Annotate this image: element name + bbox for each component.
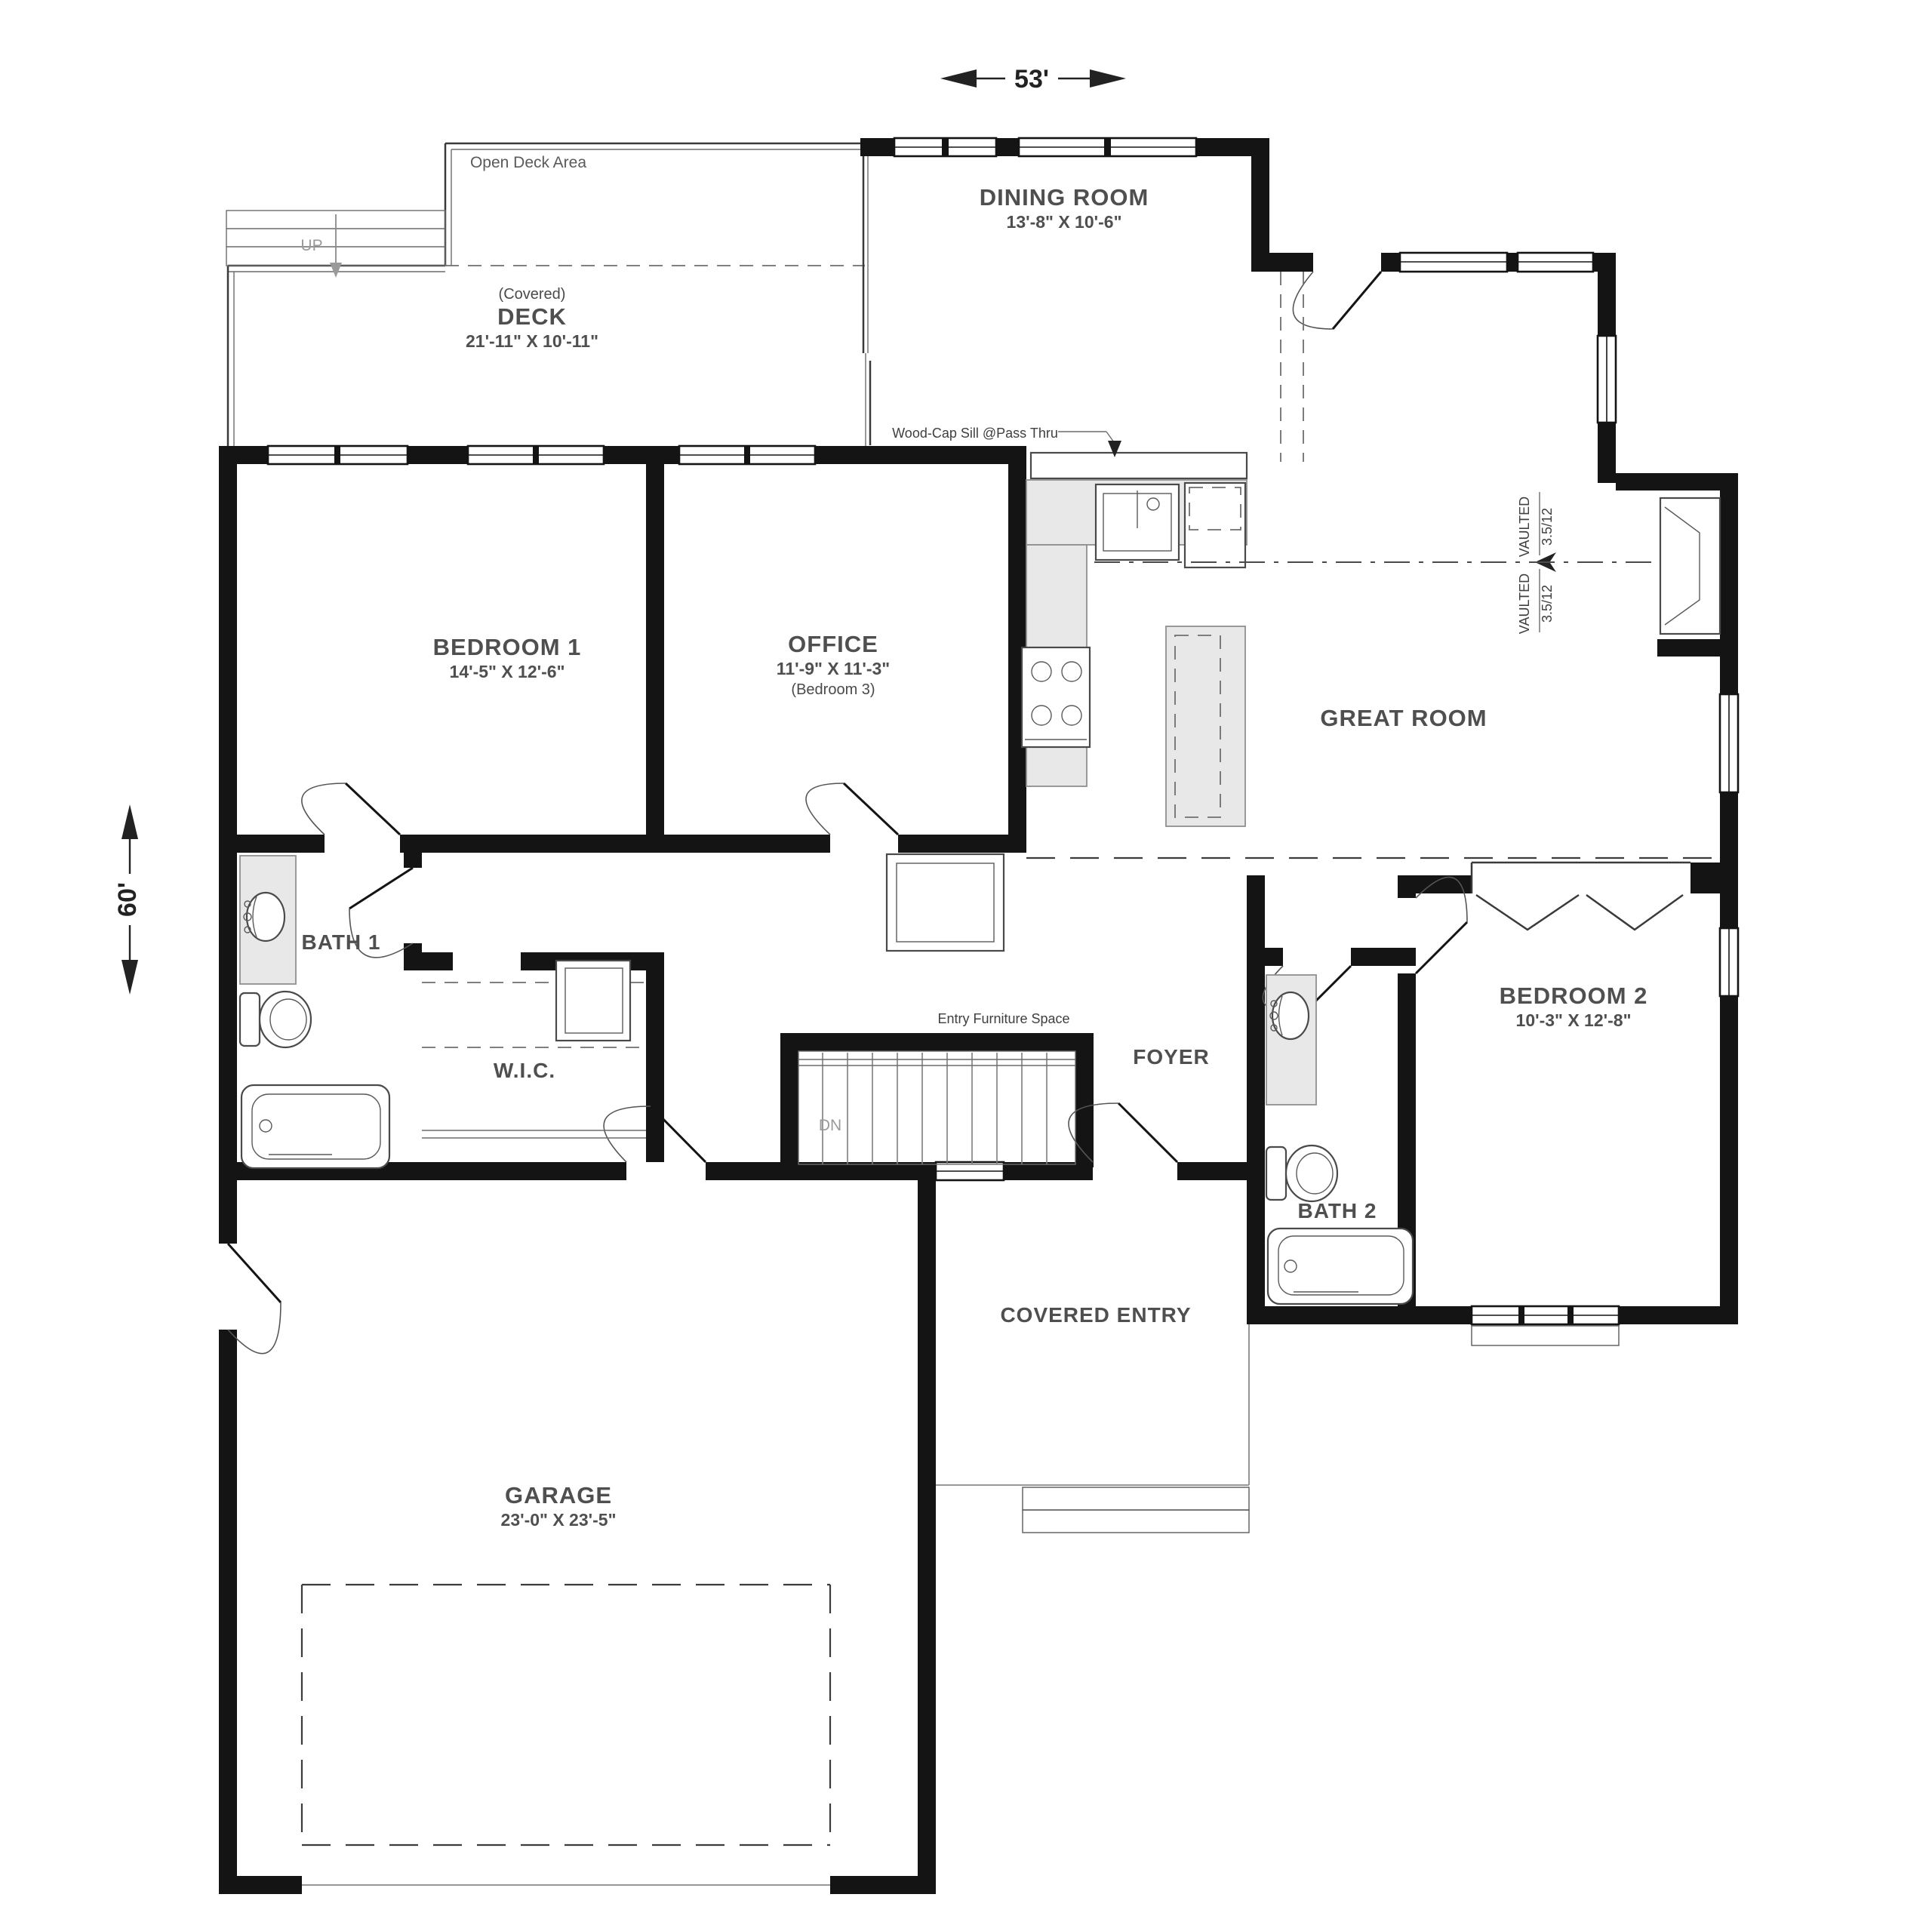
dim-height-label: 60' [113, 882, 142, 917]
garage-label: GARAGE [505, 1482, 612, 1508]
vaulted-label: VAULTED [1517, 497, 1532, 557]
deck-covered-label: (Covered) [499, 286, 566, 303]
vaulted-pitch: 3.5/12 [1540, 508, 1555, 546]
window [1720, 928, 1738, 996]
windows [268, 138, 1738, 1324]
kitchen-island [1166, 626, 1245, 826]
wood-cap-label: Wood-Cap Sill @Pass Thru [892, 426, 1058, 441]
door-great-room-deck [1293, 272, 1381, 329]
covered-entry-label: COVERED ENTRY [1000, 1303, 1191, 1327]
range-stove [1022, 647, 1090, 747]
office-dims: 11'-9" X 11'-3" [777, 659, 890, 678]
bifold-door-icon [1586, 895, 1683, 930]
dim-arrow-left-icon [940, 69, 977, 88]
bath2-fixtures [1266, 975, 1413, 1304]
window [1598, 336, 1616, 423]
office-alt-label: (Bedroom 3) [791, 681, 875, 698]
garage-door [302, 1585, 830, 1885]
floor-plan-page: 53' 60' Open Deck Area UP (Covered) DECK… [0, 0, 1932, 1925]
bath2-label: BATH 2 [1297, 1199, 1377, 1222]
wic-dresser [556, 961, 630, 1041]
bath1-label: BATH 1 [301, 930, 380, 954]
deck-label: DECK [497, 303, 567, 330]
foyer-label: FOYER [1133, 1045, 1209, 1069]
dim-arrow-right-icon [1090, 69, 1126, 88]
dining-dims: 13'-8" X 10'-6" [1007, 212, 1122, 232]
window [268, 446, 408, 464]
bedroom1-label: BEDROOM 1 [433, 634, 582, 660]
office-label: OFFICE [788, 631, 878, 657]
garage-dims: 23'-0" X 23'-5" [501, 1510, 617, 1530]
vaulted-label: VAULTED [1517, 574, 1532, 634]
entry-cabinet [887, 854, 1004, 951]
entry-furniture-label: Entry Furniture Space [937, 1011, 1069, 1026]
door-bedroom1 [302, 783, 400, 835]
up-arrow-icon [330, 263, 342, 278]
dining-label: DINING ROOM [980, 184, 1149, 211]
bedroom2-label: BEDROOM 2 [1500, 982, 1648, 1009]
bedroom1-dims: 14'-5" X 12'-6" [450, 662, 565, 681]
dimension-height: 60' [113, 804, 142, 995]
deck-dims: 21'-11" X 10'-11" [466, 331, 598, 351]
window [1518, 253, 1593, 272]
wic-label: W.I.C. [494, 1059, 555, 1082]
window [1720, 694, 1738, 792]
up-label: UP [300, 237, 322, 254]
bath2-toilet [1266, 1145, 1337, 1201]
window [679, 446, 815, 464]
window [468, 446, 604, 464]
refrigerator [1185, 483, 1245, 567]
window [1019, 138, 1196, 156]
window [1472, 1306, 1619, 1324]
vaulted-pitch: 3.5/12 [1540, 585, 1555, 623]
bath1-fixtures [240, 856, 389, 1168]
porch-steps [936, 1324, 1619, 1533]
bath1-toilet [240, 992, 311, 1047]
floor-plan-drawing: 53' 60' Open Deck Area UP (Covered) DECK… [0, 0, 1932, 1925]
dimension-width: 53' [940, 65, 1126, 94]
wic-interior [422, 961, 646, 1138]
stairs-down [798, 1051, 1075, 1164]
dn-label: DN [819, 1117, 841, 1134]
great-room-label: GREAT ROOM [1320, 705, 1487, 731]
pass-thru-sill [1031, 453, 1247, 478]
bifold-door-icon [1476, 895, 1579, 930]
door-office [806, 783, 898, 835]
window [1400, 253, 1507, 272]
kitchen [1022, 453, 1247, 826]
window [894, 138, 996, 156]
deck-stairs-up [226, 211, 445, 278]
bedroom2-dims: 10'-3" X 12'-8" [1516, 1010, 1632, 1030]
dim-width-label: 53' [1014, 65, 1049, 94]
bath1-tub [241, 1085, 389, 1168]
fireplace [1660, 498, 1720, 634]
open-deck-label: Open Deck Area [470, 154, 586, 171]
dim-arrow-down-icon [122, 960, 138, 995]
dim-arrow-up-icon [122, 804, 138, 839]
bath2-tub [1268, 1228, 1413, 1304]
bedroom2-closet [1472, 863, 1690, 930]
kitchen-sink [1096, 484, 1179, 560]
